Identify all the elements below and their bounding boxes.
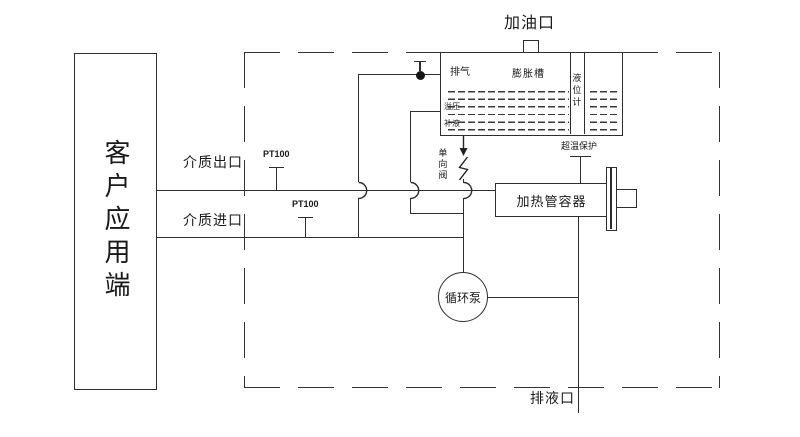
heater-flange-line xyxy=(610,168,611,229)
level-gauge-label: 液位计 xyxy=(571,73,581,109)
pipe-tank-port-vertical-upper xyxy=(410,111,411,182)
fill-port-label: 加油口 xyxy=(504,15,555,33)
boundary-left xyxy=(244,52,245,388)
boundary-right xyxy=(719,52,720,388)
heater-plug xyxy=(616,189,637,208)
pipe-heater-drain xyxy=(578,216,579,413)
fill-port-stub xyxy=(523,40,539,53)
overtemp-label: 超温保护 xyxy=(561,141,597,151)
pt100-outlet-probe xyxy=(276,167,277,190)
pipe-hop-icon xyxy=(463,182,472,199)
liquid-hatch xyxy=(587,88,619,132)
heater-vessel: 加热管容器 xyxy=(495,183,608,217)
vent-valve-stem xyxy=(419,62,420,71)
vent-valve-icon xyxy=(416,71,425,80)
pipe-medium-inlet xyxy=(156,237,464,238)
vent-valve-handle xyxy=(414,61,427,62)
gauge-column-line xyxy=(584,53,585,134)
customer-application-label: 客户应用端 xyxy=(97,139,134,304)
pt100-inlet-label: PT100 xyxy=(292,199,319,209)
pipe-vent-vertical-upper xyxy=(358,74,359,182)
heater-vessel-label: 加热管容器 xyxy=(516,191,586,210)
pipe-tank-port-vertical-lower xyxy=(410,198,411,214)
pipe-hop-icon xyxy=(358,182,367,199)
liquid-hatch xyxy=(445,88,569,132)
check-valve-label: 单向阀 xyxy=(437,148,447,181)
medium-outlet-label: 介质出口 xyxy=(183,156,243,172)
pipe-vent-horizontal xyxy=(358,74,441,75)
piping-diagram: 客户应用端 排气 膨胀槽 液位计 溢压 补液 加油口 介质出口 介质进口 PT1… xyxy=(0,0,800,437)
check-valve-icon xyxy=(455,136,472,182)
pipe-vent-vertical-lower xyxy=(358,198,359,238)
pipe-tank-port-horizontal xyxy=(410,111,441,112)
medium-inlet-label: 介质进口 xyxy=(183,214,243,230)
pipe-pump-suction xyxy=(463,198,464,272)
circulation-pump: 循环泵 xyxy=(438,272,488,322)
overtemp-probe xyxy=(580,156,581,183)
pipe-tank-to-suction xyxy=(410,213,464,214)
vent-label: 排气 xyxy=(450,67,470,79)
pipe-medium-outlet xyxy=(156,190,496,191)
expansion-tank-label: 膨胀槽 xyxy=(512,69,545,81)
pt100-outlet-label: PT100 xyxy=(263,149,290,159)
pipe-hop-icon xyxy=(410,182,419,199)
pt100-inlet-probe xyxy=(305,217,306,237)
customer-application-box: 客户应用端 xyxy=(74,53,157,390)
boundary-bottom xyxy=(244,387,720,388)
overflow-port-label: 溢压 xyxy=(444,102,460,111)
pipe-pump-discharge xyxy=(488,297,579,298)
replenish-port-label: 补液 xyxy=(444,119,460,128)
drain-port-label: 排液口 xyxy=(530,392,575,408)
expansion-tank: 排气 膨胀槽 液位计 溢压 补液 xyxy=(440,52,623,136)
circulation-pump-label: 循环泵 xyxy=(445,289,481,306)
